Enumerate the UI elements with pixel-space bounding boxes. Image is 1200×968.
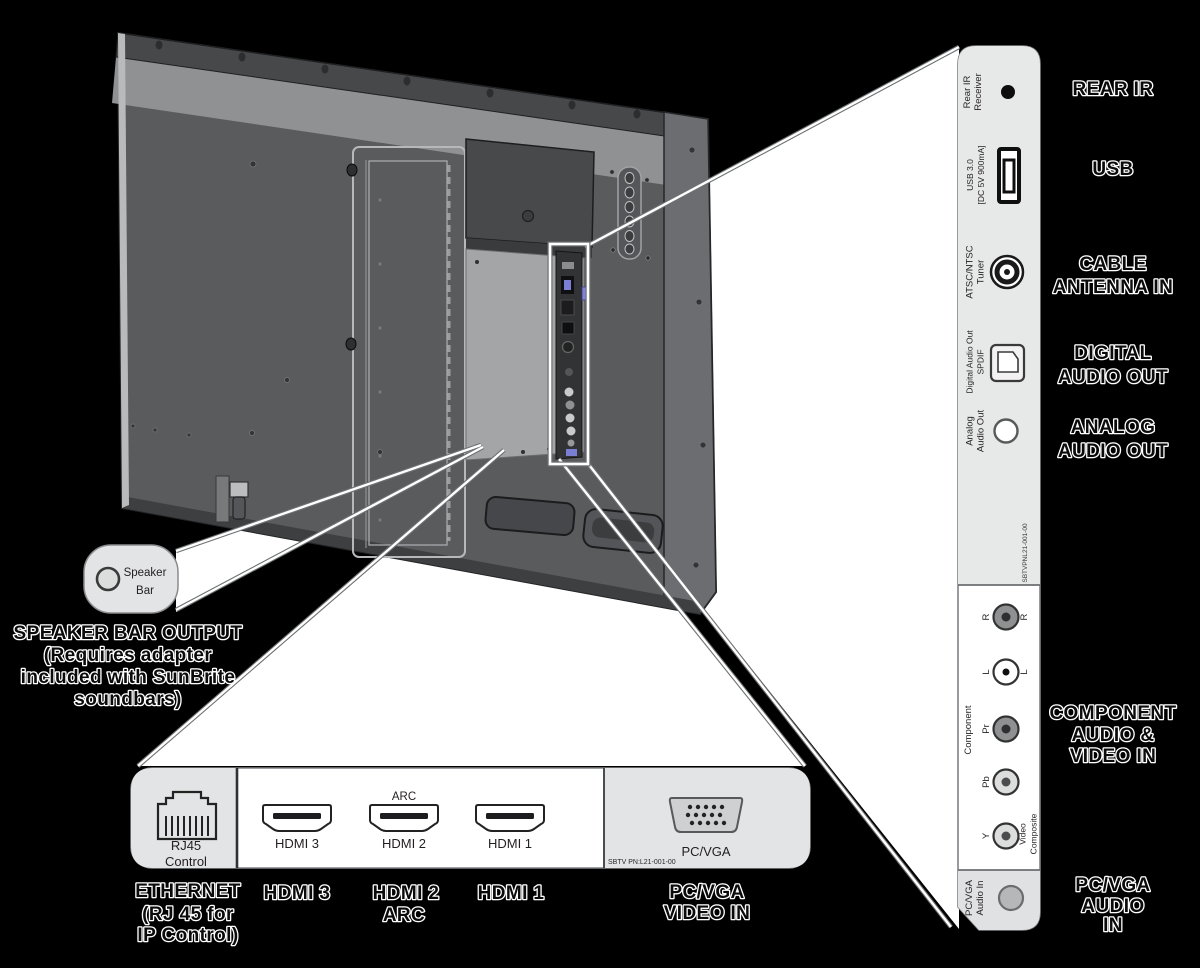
arc-label: ARC (392, 791, 416, 803)
svg-text:SPDIF: SPDIF (976, 349, 986, 374)
r-label: R (1019, 613, 1030, 620)
rear-ir-receiver-port (1001, 85, 1015, 99)
hdmi2-callout: HDMI 2 (373, 883, 440, 904)
pc-vga-audio-callout: PC/VGA (1075, 875, 1150, 896)
rear-ir-label: Rear IR Receiver (962, 73, 984, 111)
speaker-bar-port-label: Bar (136, 585, 154, 597)
hdmi1-label: HDMI 1 (488, 836, 532, 851)
pc-vga-audio-callout: IN (1103, 915, 1123, 936)
svg-text:ATSC/NTSC: ATSC/NTSC (965, 245, 976, 298)
component-callout: VIDEO IN (1070, 746, 1157, 767)
rj45-control-label: Control (165, 854, 207, 869)
speaker-bar-port-label: Speaker (124, 567, 167, 579)
svg-text:Audio In: Audio In (975, 881, 986, 916)
strip-optical-port (562, 322, 574, 334)
hdmi1-callout: HDMI 1 (478, 883, 545, 904)
speaker-caption-line: (Requires adapter (44, 645, 213, 666)
side-connector-panel: Rear IR Receiver USB 3.0 [DC 5V 900mA] A… (958, 46, 1040, 930)
speaker-caption-line: included with SunBrite (21, 667, 236, 688)
spdif-optical-port (991, 345, 1024, 381)
bottom-panel-serial: SBTV PN:L21-001-00 (608, 859, 676, 866)
strip-rca (566, 426, 576, 436)
ethernet-callout: IP Control) (137, 925, 238, 946)
svg-text:Composite: Composite (1029, 813, 1039, 854)
l-label: L (1019, 669, 1030, 674)
cable-antenna-callout: CABLE (1079, 254, 1146, 275)
tv-rear-connections-diagram: Speaker Bar Rear IR Receiver USB 3.0 [DC… (0, 0, 1200, 968)
component-callout: AUDIO & (1071, 725, 1154, 746)
hdmi2-arc-callout: ARC (383, 905, 425, 926)
ethernet-callout: (RJ 45 for (142, 904, 234, 925)
hdmi2-port (370, 805, 438, 831)
cable-antenna-callout: ANTENNA IN (1053, 277, 1173, 298)
svg-text:[DC 5V 900mA]: [DC 5V 900mA] (976, 145, 986, 204)
analog-audio-out-port (995, 420, 1018, 443)
pc-vga-video-callout: VIDEO IN (664, 903, 751, 924)
pc-vga-audio-in-port (999, 886, 1023, 910)
usb-port (999, 149, 1019, 202)
svg-text:Video: Video (1018, 823, 1028, 845)
compartment-screw (523, 211, 534, 222)
component-r-port (994, 605, 1019, 630)
speaker-caption-line: SPEAKER BAR OUTPUT (14, 623, 243, 644)
hdmi1-port (476, 805, 544, 831)
side-panel-serial: SBTVPNL21-001-00 (1022, 523, 1029, 583)
ethernet-callout: ETHERNET (135, 881, 241, 902)
strip-rca (565, 413, 575, 423)
pb-label: Pb (981, 776, 992, 788)
speaker-bar-callout: Speaker Bar (84, 545, 178, 613)
pr-label: Pr (981, 724, 992, 734)
svg-text:PC/VGA: PC/VGA (964, 879, 975, 916)
component-label: Component (963, 705, 974, 754)
strip-coax-port (563, 342, 574, 353)
svg-text:Analog: Analog (965, 416, 976, 446)
component-pb-port (994, 770, 1019, 795)
bottom-connector-panel: RJ45 Control ARC HDMI 3 HDMI 2 HDMI 1 (131, 768, 810, 869)
rj45-label: RJ45 (171, 838, 201, 853)
svg-text:Receiver: Receiver (973, 73, 984, 111)
pc-vga-audio-in-label: PC/VGA Audio In (964, 879, 986, 916)
speaker-bar-port (97, 568, 119, 590)
speaker-caption-line: soundbars) (74, 689, 181, 710)
svg-text:Audio Out: Audio Out (976, 410, 987, 453)
digital-audio-callout: DIGITAL (1074, 343, 1151, 364)
component-l-port (994, 660, 1019, 685)
tuner-coax-port (991, 256, 1023, 288)
component-pr-port (994, 717, 1019, 742)
component-y-port (994, 824, 1019, 849)
usb-callout: USB (1092, 159, 1133, 180)
analog-audio-callout: ANALOG (1071, 417, 1156, 438)
pc-vga-label: PC/VGA (681, 844, 730, 859)
pc-vga-audio-callout: AUDIO (1081, 896, 1144, 917)
strip-ir-port (562, 262, 574, 269)
digital-audio-callout: AUDIO OUT (1058, 367, 1168, 388)
strip-rca (565, 400, 575, 410)
analog-audio-callout: AUDIO OUT (1058, 441, 1168, 462)
rear-ir-callout: REAR IR (1073, 79, 1154, 100)
svg-text:USB 3.0: USB 3.0 (965, 159, 975, 191)
vga-port (670, 798, 743, 832)
strip-rca (564, 387, 574, 397)
r-label: R (981, 613, 992, 620)
svg-text:Rear IR: Rear IR (962, 75, 973, 108)
tv-right-facet (664, 112, 716, 614)
hdmi2-label: HDMI 2 (382, 836, 426, 851)
pc-vga-video-callout: PC/VGA (669, 882, 744, 903)
l-label: L (981, 669, 992, 674)
svg-text:SBTVPNL21-001-00: SBTVPNL21-001-00 (1022, 523, 1029, 583)
upper-compartment (466, 139, 594, 247)
side-panel-top-section (958, 46, 1040, 585)
strip-port (561, 300, 574, 315)
hdmi3-port (263, 805, 331, 831)
component-callout: COMPONENT (1049, 703, 1176, 724)
svg-text:Tuner: Tuner (976, 260, 987, 284)
svg-text:Digital Audio Out: Digital Audio Out (965, 330, 975, 394)
diagram-stage: Speaker Bar Rear IR Receiver USB 3.0 [DC… (0, 0, 1200, 968)
hdmi3-callout: HDMI 3 (264, 883, 331, 904)
y-label: Y (981, 832, 992, 839)
hdmi3-label: HDMI 3 (275, 836, 319, 851)
